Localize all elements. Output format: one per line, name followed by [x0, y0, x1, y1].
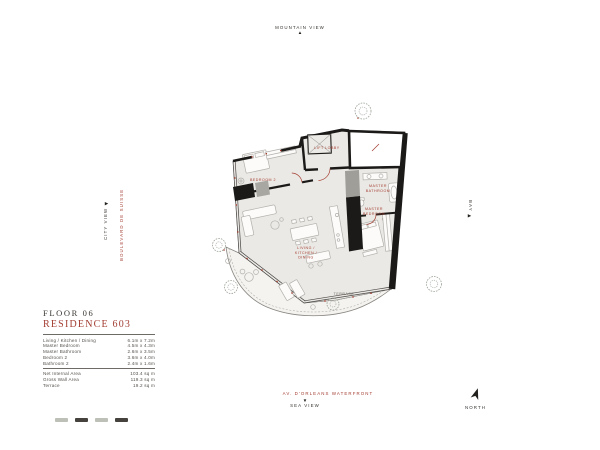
- room-label-master-bathroom-1: MASTER: [369, 184, 387, 188]
- scale-segment: [115, 418, 128, 422]
- scale-segment: [95, 418, 108, 422]
- bottom-street-name: AV. D'ORLEANS WATERFRONT: [268, 391, 388, 396]
- city-view-arrow-icon: ◀: [103, 199, 108, 205]
- room-label-living-2: KITCHEN /: [295, 251, 317, 255]
- floorplan-page: BEDROOM 2 LIFT LOBBY MASTER BATHROOM MAS…: [0, 0, 600, 450]
- view-label-bottom: ▼ SEA VIEW: [255, 398, 355, 408]
- north-label: NORTH: [448, 405, 503, 410]
- room-label-lift-lobby: LIFT LOBBY: [314, 146, 339, 150]
- mountain-view-arrow-icon: ▲: [245, 30, 355, 35]
- services-closet: [345, 170, 360, 198]
- room-label-bedroom2: BEDROOM 2: [250, 178, 276, 182]
- table-row: Bathroom 2 2.4m x 1.6m: [43, 361, 155, 367]
- street-label-left: BOULEVARD DE SUISSE: [119, 185, 124, 261]
- row-value: 2.4m x 1.6m: [128, 361, 155, 367]
- row-label: Bathroom 2: [43, 361, 69, 367]
- scale-segment: [75, 418, 88, 422]
- room-label-living-1: LIVING /: [297, 246, 315, 250]
- left-street-name: BOULEVARD DE SUISSE: [119, 189, 124, 261]
- bay-view-arrow-icon: ▶: [468, 214, 473, 220]
- view-label-top: MOUNTAIN VIEW ▲: [245, 25, 355, 35]
- sea-view-label: SEA VIEW: [255, 403, 355, 408]
- closet-chunk: [255, 181, 270, 198]
- scale-bar: [55, 418, 128, 422]
- lift-shaft: [308, 134, 332, 154]
- room-label-master-bedroom-2: BEDROOM: [363, 212, 385, 216]
- table-divider: [43, 368, 155, 369]
- row-label: Terrace: [43, 383, 60, 389]
- core-room: [349, 131, 404, 168]
- view-label-left: CITY VIEW ◀: [103, 190, 108, 240]
- scale-segment: [55, 418, 68, 422]
- city-view-label: CITY VIEW: [103, 208, 108, 240]
- dimension-table: Living / Kitchen / Dining 6.1m x 7.2m Ma…: [43, 334, 155, 389]
- bay-view-label: BAY: [468, 200, 473, 212]
- view-label-right: BAY ▶: [468, 200, 473, 234]
- floor-title: FLOOR 06: [43, 308, 155, 318]
- residence-title: RESIDENCE 603: [43, 319, 155, 330]
- services-wall: [346, 196, 363, 252]
- street-label-bottom: AV. D'ORLEANS WATERFRONT: [268, 391, 388, 396]
- room-label-terrace: TERRACE: [334, 292, 355, 296]
- compass: NORTH: [448, 387, 503, 410]
- room-label-living-3: DINING: [298, 256, 314, 260]
- north-arrow-icon: [469, 387, 483, 400]
- room-label-master-bedroom-1: MASTER: [365, 207, 383, 211]
- title-block: FLOOR 06 RESIDENCE 603 Living / Kitchen …: [43, 308, 155, 389]
- table-row: Terrace 19.2 sq m: [43, 383, 155, 389]
- row-value: 19.2 sq m: [133, 383, 155, 389]
- room-label-master-bathroom-2: BATHROOM: [366, 189, 391, 193]
